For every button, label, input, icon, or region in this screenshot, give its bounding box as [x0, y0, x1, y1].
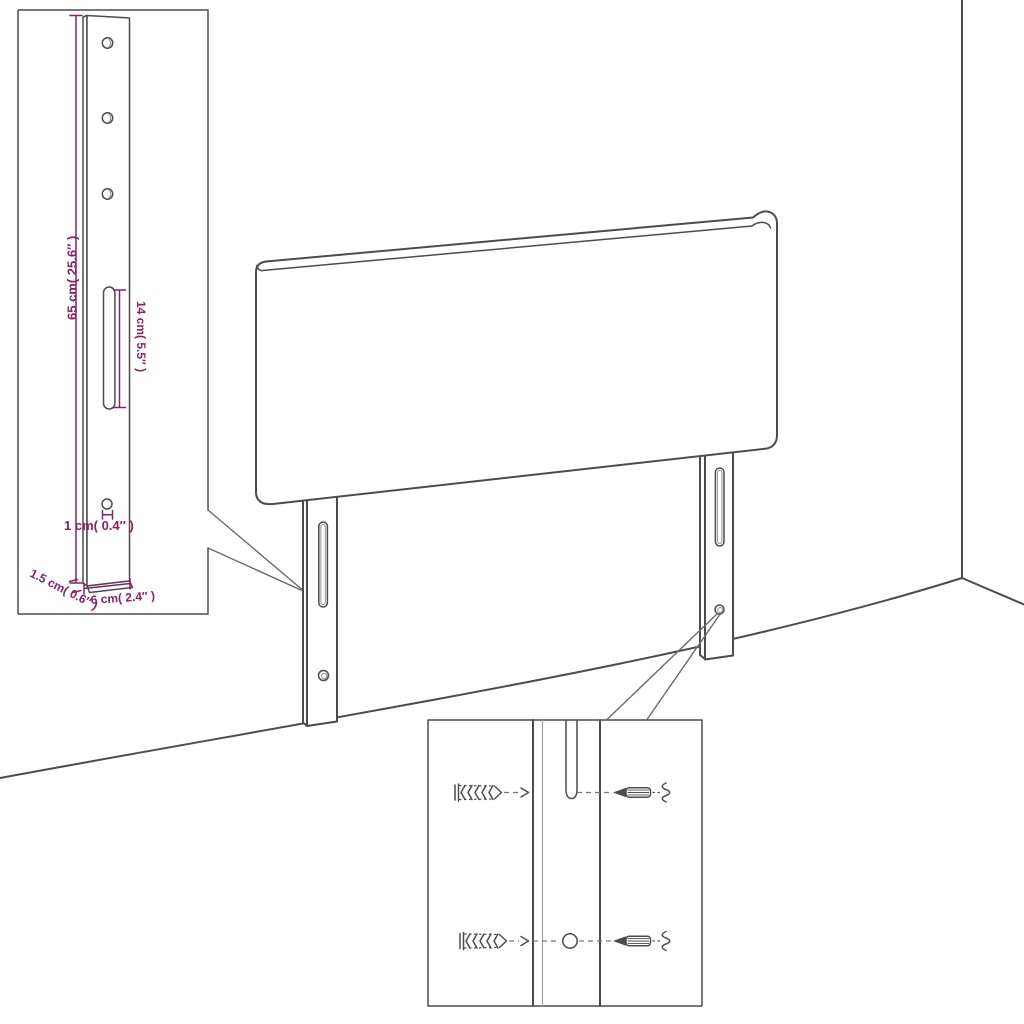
- dimension-height-label: 65 cm( 25.6″ ): [65, 236, 80, 320]
- dimension-slot-label: 14 cm( 5.5″ ): [134, 301, 148, 372]
- callout-lines: [208, 510, 302, 591]
- screw-hole-icon: [102, 499, 112, 509]
- leg-side-view: [83, 16, 133, 593]
- adjustment-slot-icon: [104, 287, 115, 409]
- callout-line-upper: [208, 510, 302, 590]
- adjustment-slot-icon: [319, 522, 328, 607]
- floor-line-right: [962, 578, 1024, 605]
- headboard-panel: [256, 211, 777, 504]
- leader-line-right: [647, 614, 721, 720]
- hardware-detail-inset: [428, 720, 702, 1006]
- headboard-left-leg: [303, 493, 337, 726]
- assembly-diagram: 65 cm( 25.6″ ) 14 cm( 5.5″ ) 1 cm( 0.4″ …: [0, 0, 1024, 1024]
- callout-line-lower: [208, 548, 302, 591]
- leg-detail-inset: 65 cm( 25.6″ ) 14 cm( 5.5″ ) 1 cm( 0.4″ …: [18, 10, 208, 614]
- screw-hole-icon: [563, 934, 577, 948]
- diagram-canvas: 65 cm( 25.6″ ) 14 cm( 5.5″ ) 1 cm( 0.4″ …: [0, 0, 1024, 1024]
- dimension-hole-label: 1 cm( 0.4″ ): [64, 518, 134, 533]
- headboard-right-leg: [700, 445, 733, 660]
- inset-border: [428, 720, 702, 1006]
- adjustment-slot-icon: [715, 468, 724, 546]
- leader-line-left: [607, 614, 718, 720]
- headboard-panel-outline: [256, 211, 777, 504]
